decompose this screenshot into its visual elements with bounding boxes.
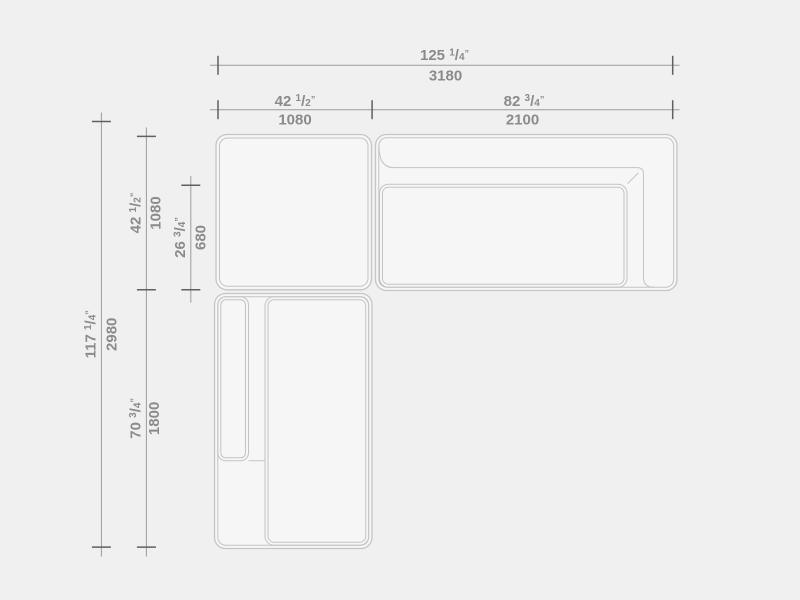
svg-text:1800: 1800 <box>146 402 163 435</box>
svg-text:1080: 1080 <box>278 112 311 129</box>
svg-text:1080: 1080 <box>148 196 165 229</box>
svg-text:2100: 2100 <box>506 112 539 129</box>
svg-text:680: 680 <box>193 225 210 250</box>
svg-text:3180: 3180 <box>429 68 462 85</box>
svg-text:2980: 2980 <box>104 318 121 351</box>
